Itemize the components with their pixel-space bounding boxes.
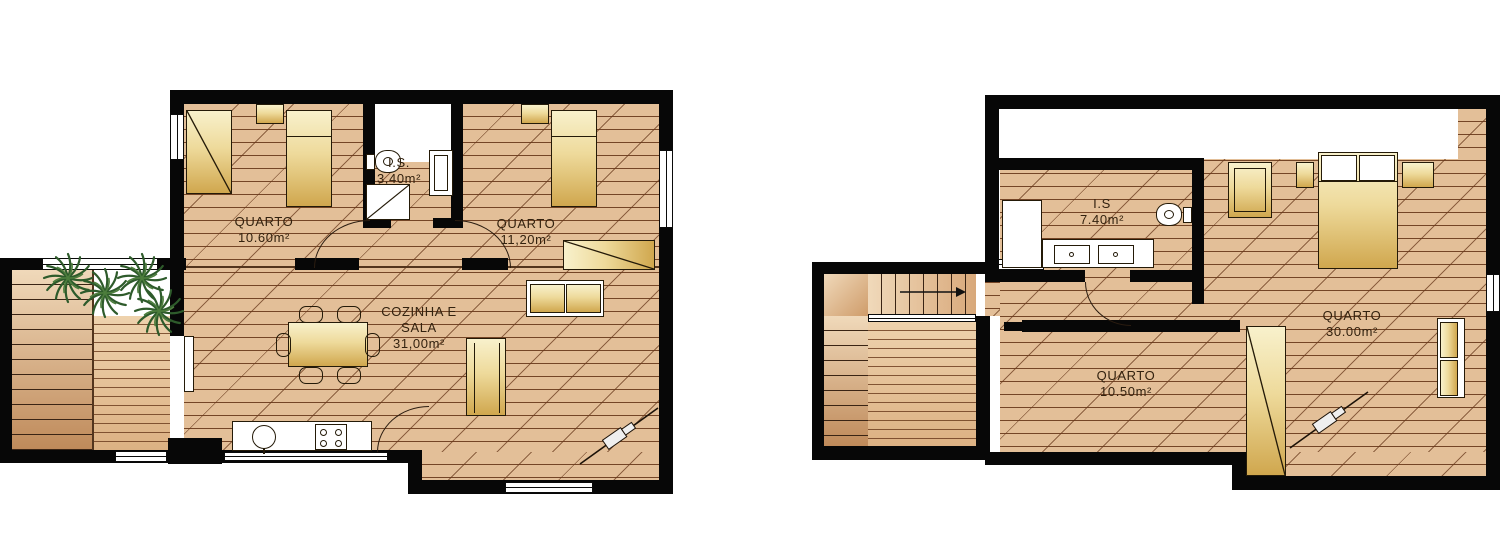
bathroom-closet xyxy=(1002,200,1042,268)
nightstand xyxy=(1402,162,1434,188)
window-symbol xyxy=(170,114,184,160)
room-label-is-1: I.S. 3,40m² xyxy=(344,155,454,187)
bed-pillow xyxy=(1359,155,1395,181)
wall xyxy=(0,258,42,270)
wall xyxy=(170,90,673,104)
wall xyxy=(1232,476,1500,490)
room-area: 7.40m² xyxy=(1047,212,1157,228)
wall xyxy=(985,270,1085,282)
closet xyxy=(256,104,284,124)
chair xyxy=(337,367,361,384)
wall xyxy=(812,446,990,460)
wall xyxy=(1022,320,1240,332)
chair xyxy=(337,306,361,323)
floor-plan-sheet: QUARTO 10.60m² I.S. 3,40m² QUARTO 11,20m… xyxy=(0,0,1507,557)
stair-deck xyxy=(868,322,976,446)
stove-burners-icon xyxy=(315,424,347,450)
dresser xyxy=(1228,162,1272,218)
bed-pillow xyxy=(287,111,331,137)
door-opening xyxy=(170,336,184,392)
room-name: I.S. xyxy=(344,155,454,171)
room-label-quarto-1: QUARTO 10.60m² xyxy=(209,214,319,246)
door-leaf xyxy=(184,336,194,392)
door-leaf xyxy=(1004,322,1024,331)
window-symbol xyxy=(1486,274,1500,312)
ground-floor-plan: QUARTO 10.60m² I.S. 3,40m² QUARTO 11,20m… xyxy=(0,0,760,557)
room-area: 30.00m² xyxy=(1297,324,1407,340)
wall xyxy=(1232,452,1246,490)
nightstand xyxy=(1296,162,1314,188)
room-name: QUARTO xyxy=(1071,368,1181,384)
wall xyxy=(985,158,1195,170)
window-symbol xyxy=(115,451,167,462)
room-name: QUARTO xyxy=(209,214,319,230)
chair xyxy=(276,333,291,357)
plant-icon xyxy=(128,280,190,342)
section-marker-icon xyxy=(578,404,662,470)
window-symbol xyxy=(505,482,593,493)
stair-banister xyxy=(868,314,976,322)
wall xyxy=(168,438,222,464)
sink-tap xyxy=(263,448,265,454)
wall xyxy=(812,262,824,460)
armchair xyxy=(466,338,506,416)
armchair-seat xyxy=(474,343,500,413)
wall xyxy=(1192,158,1204,304)
wall xyxy=(976,316,990,452)
wardrobe xyxy=(186,110,232,194)
wall xyxy=(985,95,1500,109)
room-area: 11,20m² xyxy=(471,232,581,248)
single-bed xyxy=(286,110,332,207)
wall xyxy=(0,258,12,463)
window-symbol xyxy=(659,150,673,228)
window-symbol xyxy=(224,452,388,461)
room-area: 10.60m² xyxy=(209,230,319,246)
double-bed xyxy=(1318,152,1398,269)
room-name: I.S xyxy=(1047,196,1157,212)
single-bed xyxy=(551,110,597,207)
wall xyxy=(985,452,1245,465)
upper-floor-plan: I.S 7.40m² QUARTO 30.00m² QUARTO 10.50m² xyxy=(760,0,1507,557)
stair-landing xyxy=(824,274,868,316)
room-label-quarto-3: QUARTO 30.00m² xyxy=(1297,308,1407,340)
room-label-cozinha-sala: COZINHA E SALA 31,00m² xyxy=(369,304,469,352)
room-label-quarto-4: QUARTO 10.50m² xyxy=(1071,368,1181,400)
stair-run-left xyxy=(824,316,868,446)
room-name: QUARTO xyxy=(471,216,581,232)
sink-icon xyxy=(252,425,276,449)
room-area: 10.50m² xyxy=(1071,384,1181,400)
chair xyxy=(299,367,323,384)
dining-table xyxy=(288,322,368,367)
wall xyxy=(1130,270,1204,282)
dresser-front xyxy=(1234,168,1266,212)
sofa xyxy=(1437,318,1465,398)
toilet-icon xyxy=(1156,203,1194,227)
room-name: QUARTO xyxy=(1297,308,1407,324)
room-label-is: I.S 7.40m² xyxy=(1047,196,1157,228)
wardrobe xyxy=(1246,326,1286,476)
double-sink-icon xyxy=(1042,239,1154,268)
room-area: 3,40m² xyxy=(344,171,454,187)
room-name: COZINHA E SALA xyxy=(369,304,469,336)
bed-pillow xyxy=(1321,155,1357,181)
bed-pillow xyxy=(552,111,596,137)
wall xyxy=(812,262,990,274)
section-marker-icon xyxy=(1288,388,1372,454)
sofa xyxy=(526,280,604,317)
wall xyxy=(985,95,999,270)
stairs-arrow-icon xyxy=(898,284,968,300)
room-label-quarto-2: QUARTO 11,20m² xyxy=(471,216,581,248)
chair xyxy=(299,306,323,323)
room-area: 31,00m² xyxy=(369,336,469,352)
shower-tray-icon xyxy=(366,184,410,220)
closet xyxy=(521,104,549,124)
kitchen-counter xyxy=(232,421,372,451)
